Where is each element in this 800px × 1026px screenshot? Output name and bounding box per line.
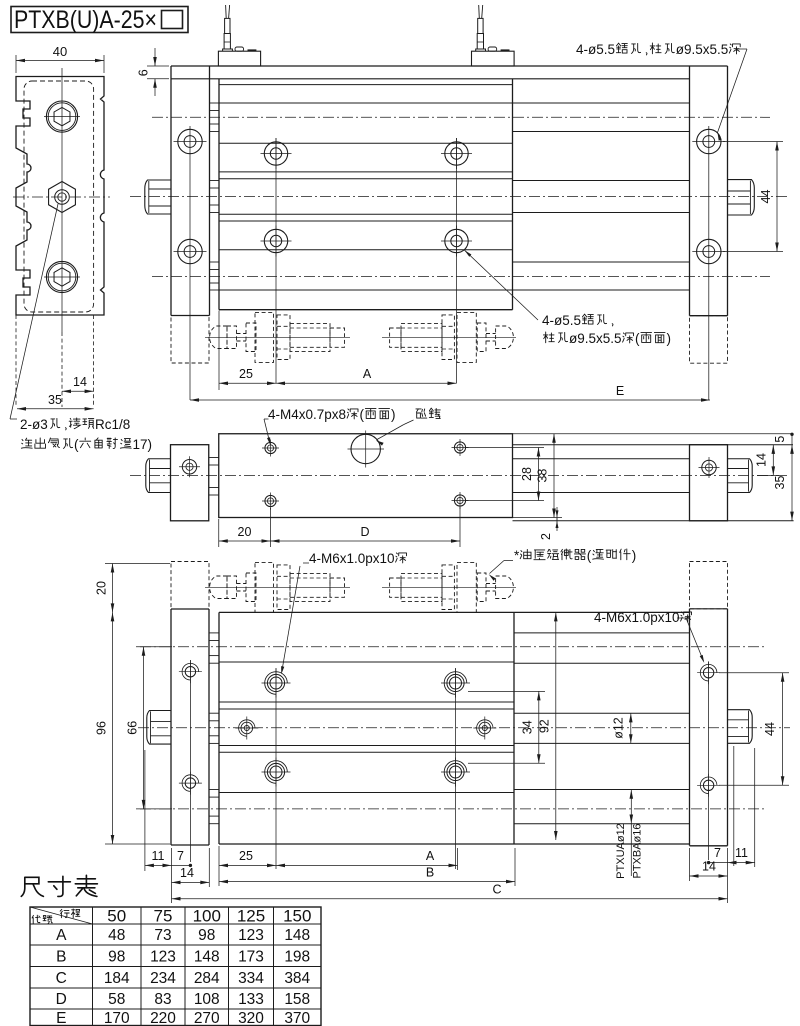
svg-text:83: 83: [154, 991, 171, 1008]
svg-text:4-ø5.5: 4-ø5.5: [576, 42, 615, 57]
svg-text:4-M6x1.0px10: 4-M6x1.0px10: [309, 551, 395, 566]
svg-text:75: 75: [154, 907, 173, 926]
svg-text:C: C: [492, 883, 501, 897]
svg-text:148: 148: [284, 927, 310, 944]
svg-text:17): 17): [133, 437, 153, 452]
svg-text:170: 170: [104, 1010, 130, 1026]
svg-text:7: 7: [177, 849, 184, 863]
svg-text:184: 184: [104, 970, 130, 987]
svg-text:C: C: [56, 970, 67, 987]
svg-text:38: 38: [536, 469, 550, 483]
svg-text:14: 14: [702, 860, 716, 874]
svg-text:108: 108: [194, 991, 220, 1008]
svg-text:198: 198: [284, 948, 310, 965]
svg-text:35: 35: [48, 393, 62, 407]
svg-text:6: 6: [137, 69, 151, 76]
svg-text:14: 14: [180, 866, 194, 880]
svg-text:73: 73: [154, 927, 171, 944]
svg-text:D: D: [360, 525, 369, 539]
svg-text:A: A: [56, 927, 67, 944]
svg-text:92: 92: [538, 719, 552, 733]
svg-text:11: 11: [152, 849, 165, 863]
svg-text:): ): [391, 407, 396, 422]
svg-text:(: (: [635, 331, 640, 346]
svg-text:40: 40: [53, 44, 67, 59]
svg-text:270: 270: [194, 1010, 220, 1026]
svg-text:): ): [667, 331, 672, 346]
svg-text:220: 220: [150, 1010, 176, 1026]
svg-text:2-ø3: 2-ø3: [20, 417, 48, 432]
svg-text:35: 35: [773, 476, 787, 490]
svg-text:4-ø5.5: 4-ø5.5: [542, 313, 581, 328]
svg-text:(: (: [74, 437, 79, 452]
svg-text:123: 123: [238, 927, 264, 944]
svg-text:(: (: [360, 407, 365, 422]
svg-text:28: 28: [520, 467, 534, 481]
svg-text:96: 96: [95, 721, 109, 735]
svg-text:D: D: [56, 991, 67, 1008]
svg-text:123: 123: [150, 948, 176, 965]
svg-text:48: 48: [108, 927, 125, 944]
svg-text:148: 148: [194, 948, 220, 965]
svg-text:4-M6x1.0px10: 4-M6x1.0px10: [594, 610, 680, 625]
svg-text:B: B: [426, 866, 434, 880]
svg-text:25: 25: [239, 849, 253, 863]
svg-text:E: E: [616, 384, 624, 398]
svg-text:PTXUAø12: PTXUAø12: [615, 823, 627, 879]
svg-text:150: 150: [283, 907, 311, 926]
svg-text:E: E: [56, 1010, 66, 1026]
svg-text:ø9.5x5.5: ø9.5x5.5: [676, 42, 729, 57]
svg-text:98: 98: [198, 927, 215, 944]
svg-text:7: 7: [714, 846, 721, 860]
svg-text:PTXB(U)A-25×: PTXB(U)A-25×: [14, 6, 157, 34]
svg-text:A: A: [426, 849, 435, 863]
svg-text:*: *: [514, 548, 520, 563]
svg-text:11: 11: [735, 846, 748, 860]
svg-text:173: 173: [238, 948, 264, 965]
svg-text:34: 34: [521, 720, 535, 734]
svg-text:ø12: ø12: [612, 717, 626, 739]
svg-text:370: 370: [284, 1010, 310, 1026]
svg-text:14: 14: [755, 453, 769, 467]
svg-text:14: 14: [73, 375, 87, 389]
svg-text:234: 234: [150, 970, 176, 987]
svg-text:58: 58: [108, 991, 125, 1008]
svg-text:PTXBAø16: PTXBAø16: [632, 823, 644, 878]
svg-text:4-M4x0.7px8: 4-M4x0.7px8: [268, 407, 346, 422]
svg-text:133: 133: [238, 991, 264, 1008]
svg-text:125: 125: [237, 907, 265, 926]
svg-text:B: B: [56, 948, 66, 965]
svg-text:): ): [632, 548, 637, 563]
svg-text:2: 2: [539, 533, 553, 540]
svg-text:(: (: [587, 548, 592, 563]
svg-text:384: 384: [284, 970, 310, 987]
svg-text:44: 44: [759, 190, 773, 204]
svg-text:Rc1/8: Rc1/8: [95, 417, 130, 432]
svg-text:44: 44: [763, 722, 777, 736]
svg-text:66: 66: [126, 721, 140, 735]
svg-text:25: 25: [239, 367, 253, 381]
svg-text:20: 20: [95, 581, 109, 595]
svg-text:100: 100: [193, 907, 221, 926]
svg-text:158: 158: [284, 991, 310, 1008]
svg-text:334: 334: [238, 970, 264, 987]
svg-text:50: 50: [107, 907, 126, 926]
svg-text:5: 5: [773, 436, 787, 443]
svg-text:20: 20: [238, 525, 252, 539]
svg-text:320: 320: [238, 1010, 264, 1026]
svg-text:A: A: [363, 367, 372, 381]
svg-text:98: 98: [108, 948, 125, 965]
svg-text:ø9.5x5.5: ø9.5x5.5: [569, 331, 622, 346]
svg-text:284: 284: [194, 970, 220, 987]
